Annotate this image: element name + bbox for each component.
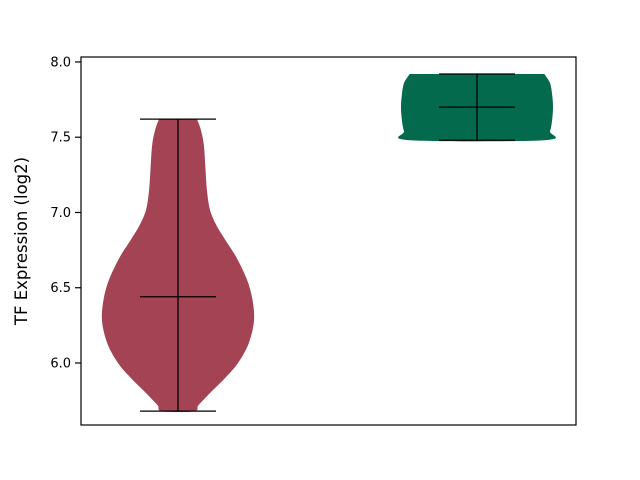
y-tick-label: 8.0 <box>50 55 71 70</box>
violin-chart: 8.07.57.06.56.0 TF Expression (log2) <box>0 0 640 480</box>
y-tick-label: 7.0 <box>50 206 71 221</box>
y-tick-label: 6.5 <box>50 281 71 296</box>
y-axis-label: TF Expression (log2) <box>12 157 31 326</box>
figure: 8.07.57.06.56.0 TF Expression (log2) <box>0 0 640 480</box>
violins-layer <box>102 74 556 412</box>
y-axis-ticks: 8.07.57.06.56.0 <box>50 55 81 371</box>
y-tick-label: 6.0 <box>50 356 71 371</box>
y-tick-label: 7.5 <box>50 131 71 146</box>
